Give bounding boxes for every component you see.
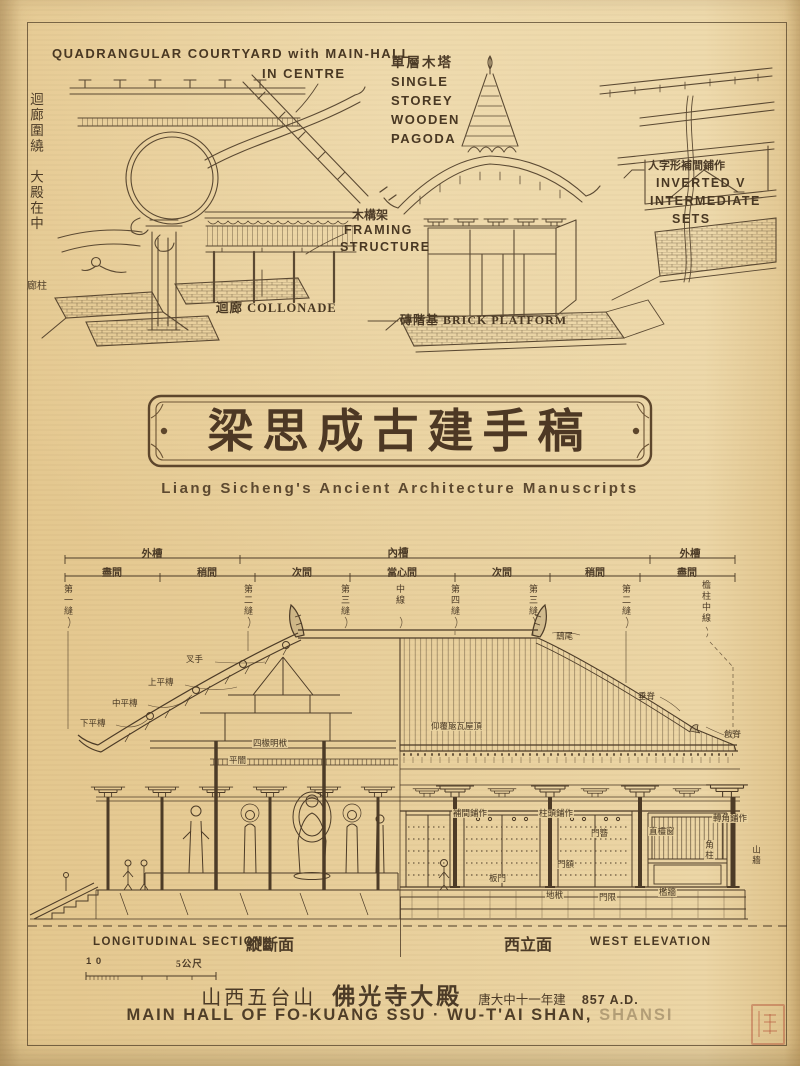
dim-outer-left: 外槽 (142, 546, 163, 561)
ann-zhongp: 中平槫 (112, 699, 138, 708)
inverted-v-label-en1: INVERTED V (656, 176, 746, 190)
colonnade-column-note: 廊柱 (27, 277, 47, 292)
ann-roof-tiles: 仰覆瓪瓦屋頂 (430, 722, 483, 731)
inverted-v-label-cn: 人字形補間鋪作 (648, 157, 725, 173)
inverted-v-label-en3: SETS (672, 212, 711, 226)
ann-jiaozhu: 角柱 (704, 840, 715, 861)
courtyard-heading-2: IN CENTRE (262, 66, 346, 81)
ann-chiwei: 鴟尾 (556, 632, 573, 641)
ann-zhutou: 柱頭鋪作 (538, 809, 574, 818)
brick-platform-label: 磚階基 BRICK PLATFORM (400, 311, 567, 328)
ann-mingfu: 四椽明栿 (252, 739, 288, 748)
pagoda-label-en-1: STOREY (391, 93, 453, 108)
dougong-band (91, 769, 748, 801)
ann-zhuanjiao: 轉角鋪作 (712, 814, 748, 823)
ann-kanqiang: 檻牆 (658, 888, 677, 897)
ann-bujian: 補間鋪作 (452, 809, 488, 818)
pagoda-label-cn: 單層木塔 (391, 51, 453, 71)
ann-menzan: 門簪 (590, 829, 609, 838)
caption-elevation-en: WEST ELEVATION (590, 936, 712, 948)
pagoda-label-en-3: PAGODA (391, 131, 456, 146)
framing-label-en1: FRAMING (344, 223, 413, 237)
courtyard-vertical-note: 迴廊圍繞 大殿在中 (25, 92, 45, 282)
ann-chashou: 叉手 (186, 655, 203, 664)
ann-shang: 上平槫 (148, 678, 174, 687)
colonnade-label: 迴廊 COLLONADE (216, 297, 337, 316)
axis-4: 第四縫 (449, 584, 462, 617)
ann-chuiji: 垂脊 (638, 692, 655, 701)
ann-xiap: 下平槫 (80, 719, 106, 728)
axis-6: 第二縫 (620, 584, 633, 617)
caption-divider (400, 897, 401, 957)
bay-1: 稍間 (197, 564, 217, 579)
dim-inner: 內槽 (388, 545, 409, 560)
ann-chuang: 直欞窗 (648, 827, 676, 836)
poster-subtitle: Liang Sicheng's Ancient Architecture Man… (0, 480, 800, 497)
inverted-v-label-en2: INTERMEDIATE (650, 194, 761, 208)
ann-mene: 門額 (556, 860, 575, 869)
seal-stamp (751, 1004, 785, 1045)
dim-outer-right: 外槽 (680, 546, 701, 561)
footer-en-faded: SHANSI (599, 1006, 673, 1024)
axis-1: 第二縫 (242, 584, 255, 617)
ann-difu: 地栿 (545, 891, 564, 900)
pagoda-label-en-0: SINGLE (391, 74, 448, 89)
caption-elevation-cn: 西立面 (504, 931, 552, 955)
poster-title: 梁思成古建手稿 (147, 394, 653, 468)
section-interior (30, 642, 400, 920)
framing-label-en2: STRUCTURE (340, 240, 431, 254)
ann-qiangji: 戧脊 (724, 730, 741, 739)
roof (78, 605, 738, 763)
courtyard-heading: QUADRANGULAR COURTYARD with MAIN-HALL (52, 46, 411, 61)
ann-banmen: 板門 (488, 874, 507, 883)
axis-0: 第一縫 (62, 584, 75, 617)
bay-5: 稍間 (585, 564, 605, 579)
framing-label-cn: 木構架 (352, 206, 388, 223)
axis-7: 檐柱中線 (700, 580, 713, 624)
caption-section-cn: 縱斷面 (246, 931, 294, 955)
axis-2: 第三縫 (339, 584, 352, 617)
bay-4: 次間 (492, 564, 512, 579)
poster-page: QUADRANGULAR COURTYARD with MAIN-HALL IN… (0, 0, 800, 1066)
title-plaque: 梁思成古建手稿 (147, 394, 653, 468)
axis-5: 第三縫 (527, 584, 540, 617)
footer-year: 857 A.D. (582, 993, 639, 1007)
pagoda-label-en-2: WOODEN (391, 112, 460, 127)
footer-en-main: MAIN HALL OF FO-KUANG SSU · WU-T'AI SHAN… (127, 1006, 593, 1024)
ann-menxian: 門限 (598, 893, 617, 902)
bay-2: 次間 (292, 564, 312, 579)
ann-shanqiang: 山牆 (752, 845, 761, 866)
bay-3: 當心間 (387, 564, 417, 579)
bay-0: 盡間 (102, 564, 122, 579)
ann-pingan: 平闇 (228, 756, 247, 765)
bay-6: 盡間 (677, 564, 697, 579)
scale-start: 1 0 (86, 956, 102, 967)
footer-english-row: MAIN HALL OF FO-KUANG SSU · WU-T'AI SHAN… (0, 1006, 800, 1025)
caption-section-en: LONGITUDINAL SECTION (93, 936, 264, 948)
axis-3: 中線 (394, 584, 407, 606)
